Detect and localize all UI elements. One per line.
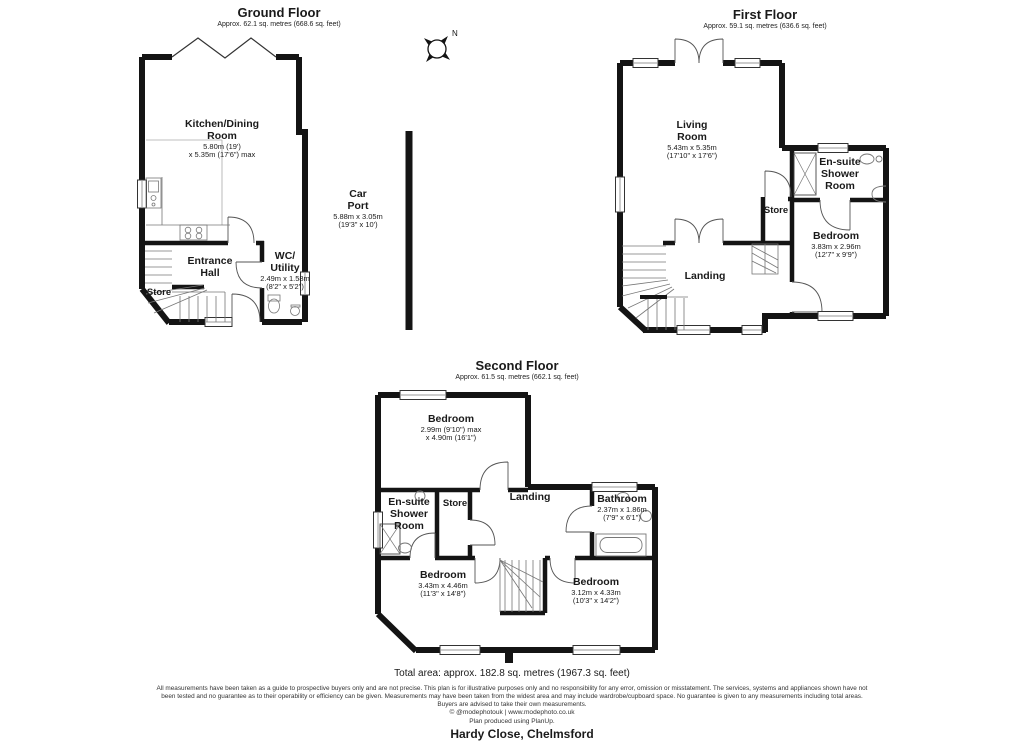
room-label-ensuite-first: En-suite Shower Room	[819, 157, 860, 192]
room-label-bedroom-left: Bedroom 3.43m x 4.46m (11'3" x 14'8")	[418, 570, 468, 599]
toilet-icon	[860, 154, 874, 164]
room-label-wc-utility: WC/ Utility 2.49m x 1.58m (8'2" x 5'2")	[260, 251, 310, 291]
basin-icon	[291, 307, 300, 316]
room-label-landing-first: Landing	[685, 271, 726, 283]
ground-floor-title: Ground Floor Approx. 62.1 sq. metres (66…	[217, 6, 340, 28]
second-floor-title: Second Floor Approx. 61.5 sq. metres (66…	[455, 359, 578, 381]
first-floor-title: First Floor Approx. 59.1 sq. metres (636…	[703, 8, 826, 30]
property-address: Hardy Close, Chelmsford	[450, 728, 593, 741]
first-floor-walls	[620, 63, 886, 332]
room-label-kitchen: Kitchen/Dining Room 5.80m (19') x 5.35m …	[185, 119, 259, 159]
floorplan-page: N	[0, 0, 1024, 745]
room-label-bedroom-first: Bedroom 3.83m x 2.96m (12'7" x 9'9")	[811, 231, 861, 260]
room-label-living-room: Living Room 5.43m x 5.35m (17'10" x 17'6…	[667, 120, 717, 160]
floor-area-text: Approx. 62.1 sq. metres (668.6 sq. feet)	[217, 21, 340, 29]
disclaimer: All measurements have been taken as a gu…	[157, 685, 868, 709]
room-label-car-port: Car Port 5.88m x 3.05m (19'3" x 10')	[333, 189, 383, 229]
second-floor-stairs	[500, 560, 543, 612]
floor-title-text: Ground Floor	[217, 6, 340, 21]
room-label-store-second: Store	[443, 499, 467, 510]
room-label-ensuite-second: En-suite Shower Room	[388, 497, 429, 532]
credits: © @modephotouk | www.modephoto.co.uk Pla…	[449, 709, 574, 726]
room-label-store-first: Store	[764, 206, 788, 217]
wc-fixtures	[268, 295, 300, 316]
first-floor-stairs	[622, 244, 778, 330]
ground-floor-doors	[228, 217, 262, 322]
planup-credit: Plan produced using PlanUp.	[449, 718, 574, 727]
room-label-store-ground: Store	[147, 288, 171, 299]
ground-floor-open-edge	[172, 38, 276, 58]
room-label-bedroom-right: Bedroom 3.12m x 4.33m (10'3" x 14'2")	[571, 577, 621, 606]
compass-north-label: N	[452, 29, 458, 38]
room-label-landing-second: Landing	[510, 492, 551, 504]
photographer-credit: © @modephotouk | www.modephoto.co.uk	[449, 709, 574, 718]
room-label-bedroom-top: Bedroom 2.99m (9'10") max x 4.90m (16'1"…	[421, 414, 482, 443]
room-label-entrance-hall: Entrance Hall	[188, 256, 233, 280]
hob-icon	[180, 225, 207, 240]
room-label-bathroom: Bathroom 2.37m x 1.86m (7'9" x 6'1")	[597, 494, 647, 523]
total-area: Total area: approx. 182.8 sq. metres (19…	[394, 668, 630, 679]
toilet-icon	[399, 543, 412, 553]
compass-icon: N	[413, 25, 461, 73]
